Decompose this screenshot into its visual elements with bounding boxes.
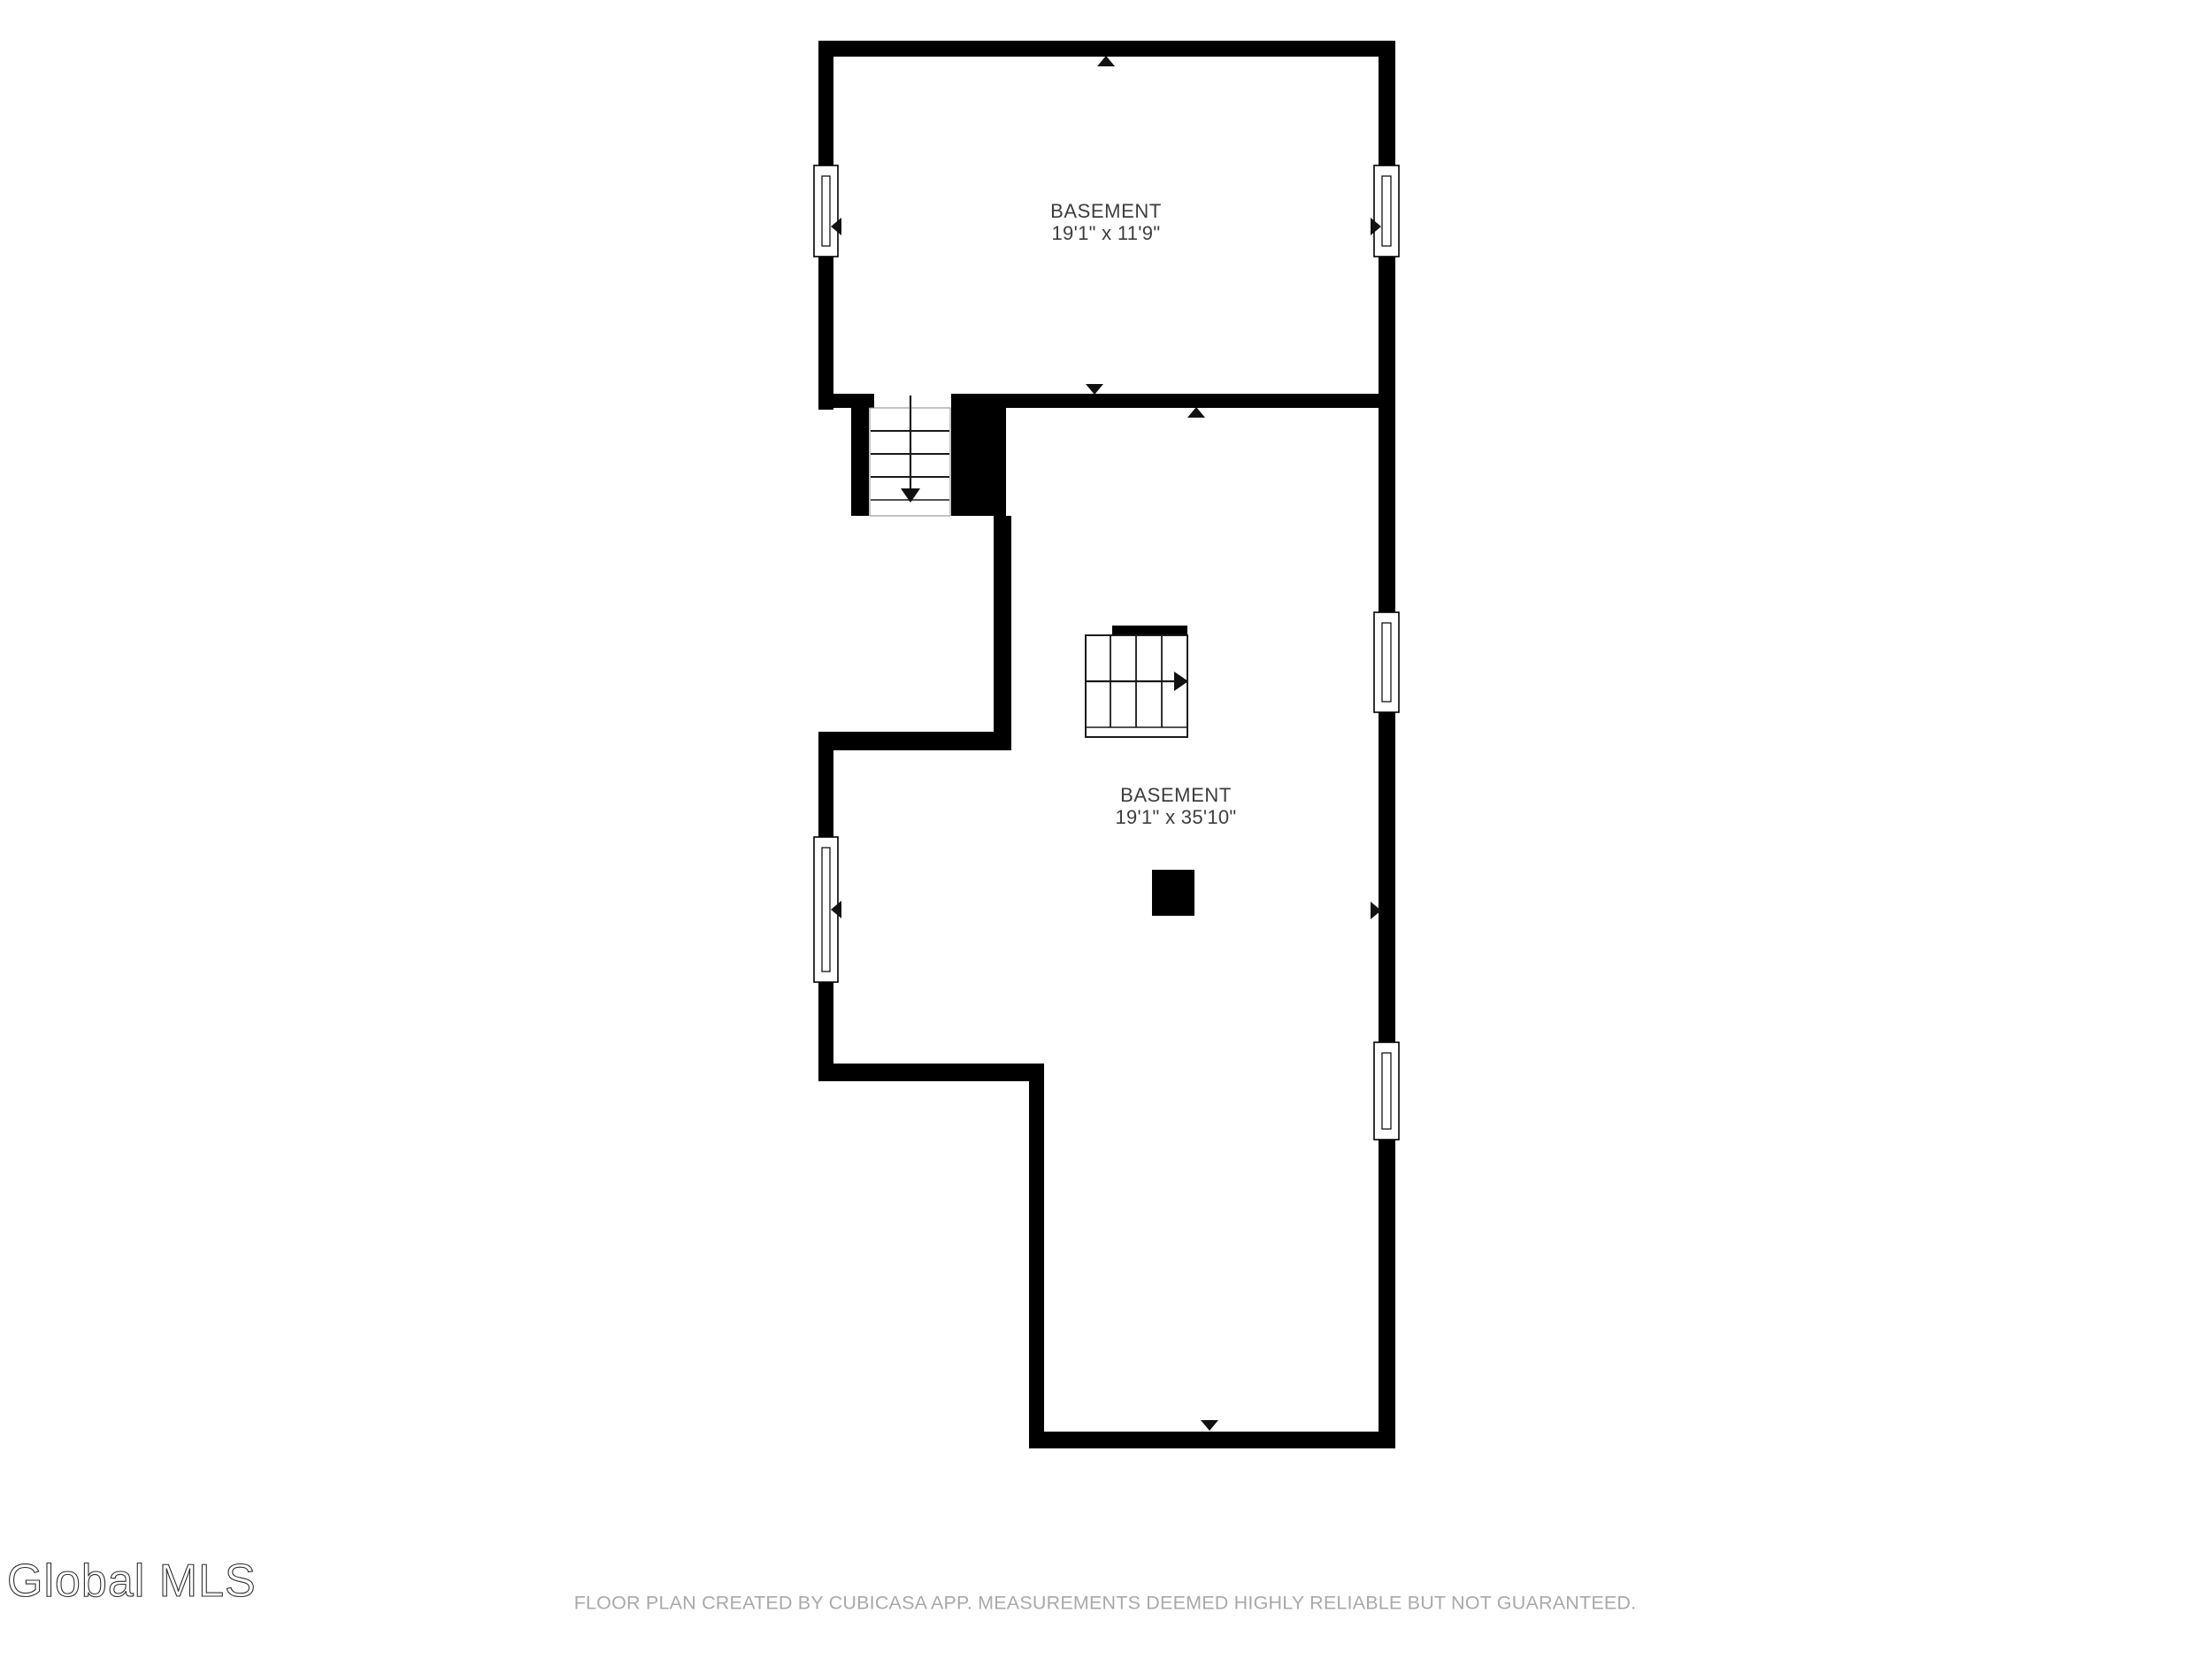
wall-segment xyxy=(818,41,833,165)
wall-segment xyxy=(1379,1140,1395,1448)
wall-segment xyxy=(994,516,1011,750)
wall-arrow-icon xyxy=(1201,1420,1218,1431)
disclaimer-text: FLOOR PLAN CREATED BY CUBICASA APP. MEAS… xyxy=(574,1593,1637,1615)
window-glass xyxy=(1382,176,1391,246)
wall-segment xyxy=(1379,257,1395,612)
window-glass xyxy=(822,176,830,246)
window-glass xyxy=(1382,1053,1391,1129)
global-mls-logo: Global MLS xyxy=(7,1555,257,1608)
window-glass xyxy=(822,848,830,972)
wall-segment xyxy=(1379,41,1395,165)
floor-plan-page: BASEMENT 19'1" x 11'9" BASEMENT 19'1" x … xyxy=(0,0,2212,1659)
support-column xyxy=(1152,870,1194,916)
wall-segment xyxy=(1029,1432,1395,1448)
room-dimensions: 19'1" x 11'9" xyxy=(1050,222,1162,244)
wall-segment xyxy=(1029,1064,1044,1448)
wall-segment xyxy=(851,396,869,516)
room-name: BASEMENT xyxy=(1050,200,1162,222)
wall-segment xyxy=(818,732,1011,750)
room-dimensions: 19'1" x 35'10" xyxy=(1115,806,1236,828)
window-glass xyxy=(1382,623,1391,702)
wall-arrow-icon xyxy=(1097,56,1115,66)
wall-segment xyxy=(818,732,833,837)
wall-arrow-icon xyxy=(1187,407,1205,418)
wall-segment xyxy=(818,1064,1044,1081)
room-label-basement-lower: BASEMENT 19'1" x 35'10" xyxy=(1115,784,1236,828)
staircase-upper-opening xyxy=(874,394,951,409)
room-name: BASEMENT xyxy=(1115,784,1236,806)
room-label-basement-upper: BASEMENT 19'1" x 11'9" xyxy=(1050,200,1162,244)
wall-segment xyxy=(1379,712,1395,1042)
wall-arrow-icon xyxy=(1086,384,1103,395)
wall-segment xyxy=(951,394,1006,516)
floor-plan-drawing xyxy=(0,0,2212,1659)
wall-segment xyxy=(951,394,1395,408)
wall-segment xyxy=(818,257,833,410)
wall-segment xyxy=(818,41,1395,57)
